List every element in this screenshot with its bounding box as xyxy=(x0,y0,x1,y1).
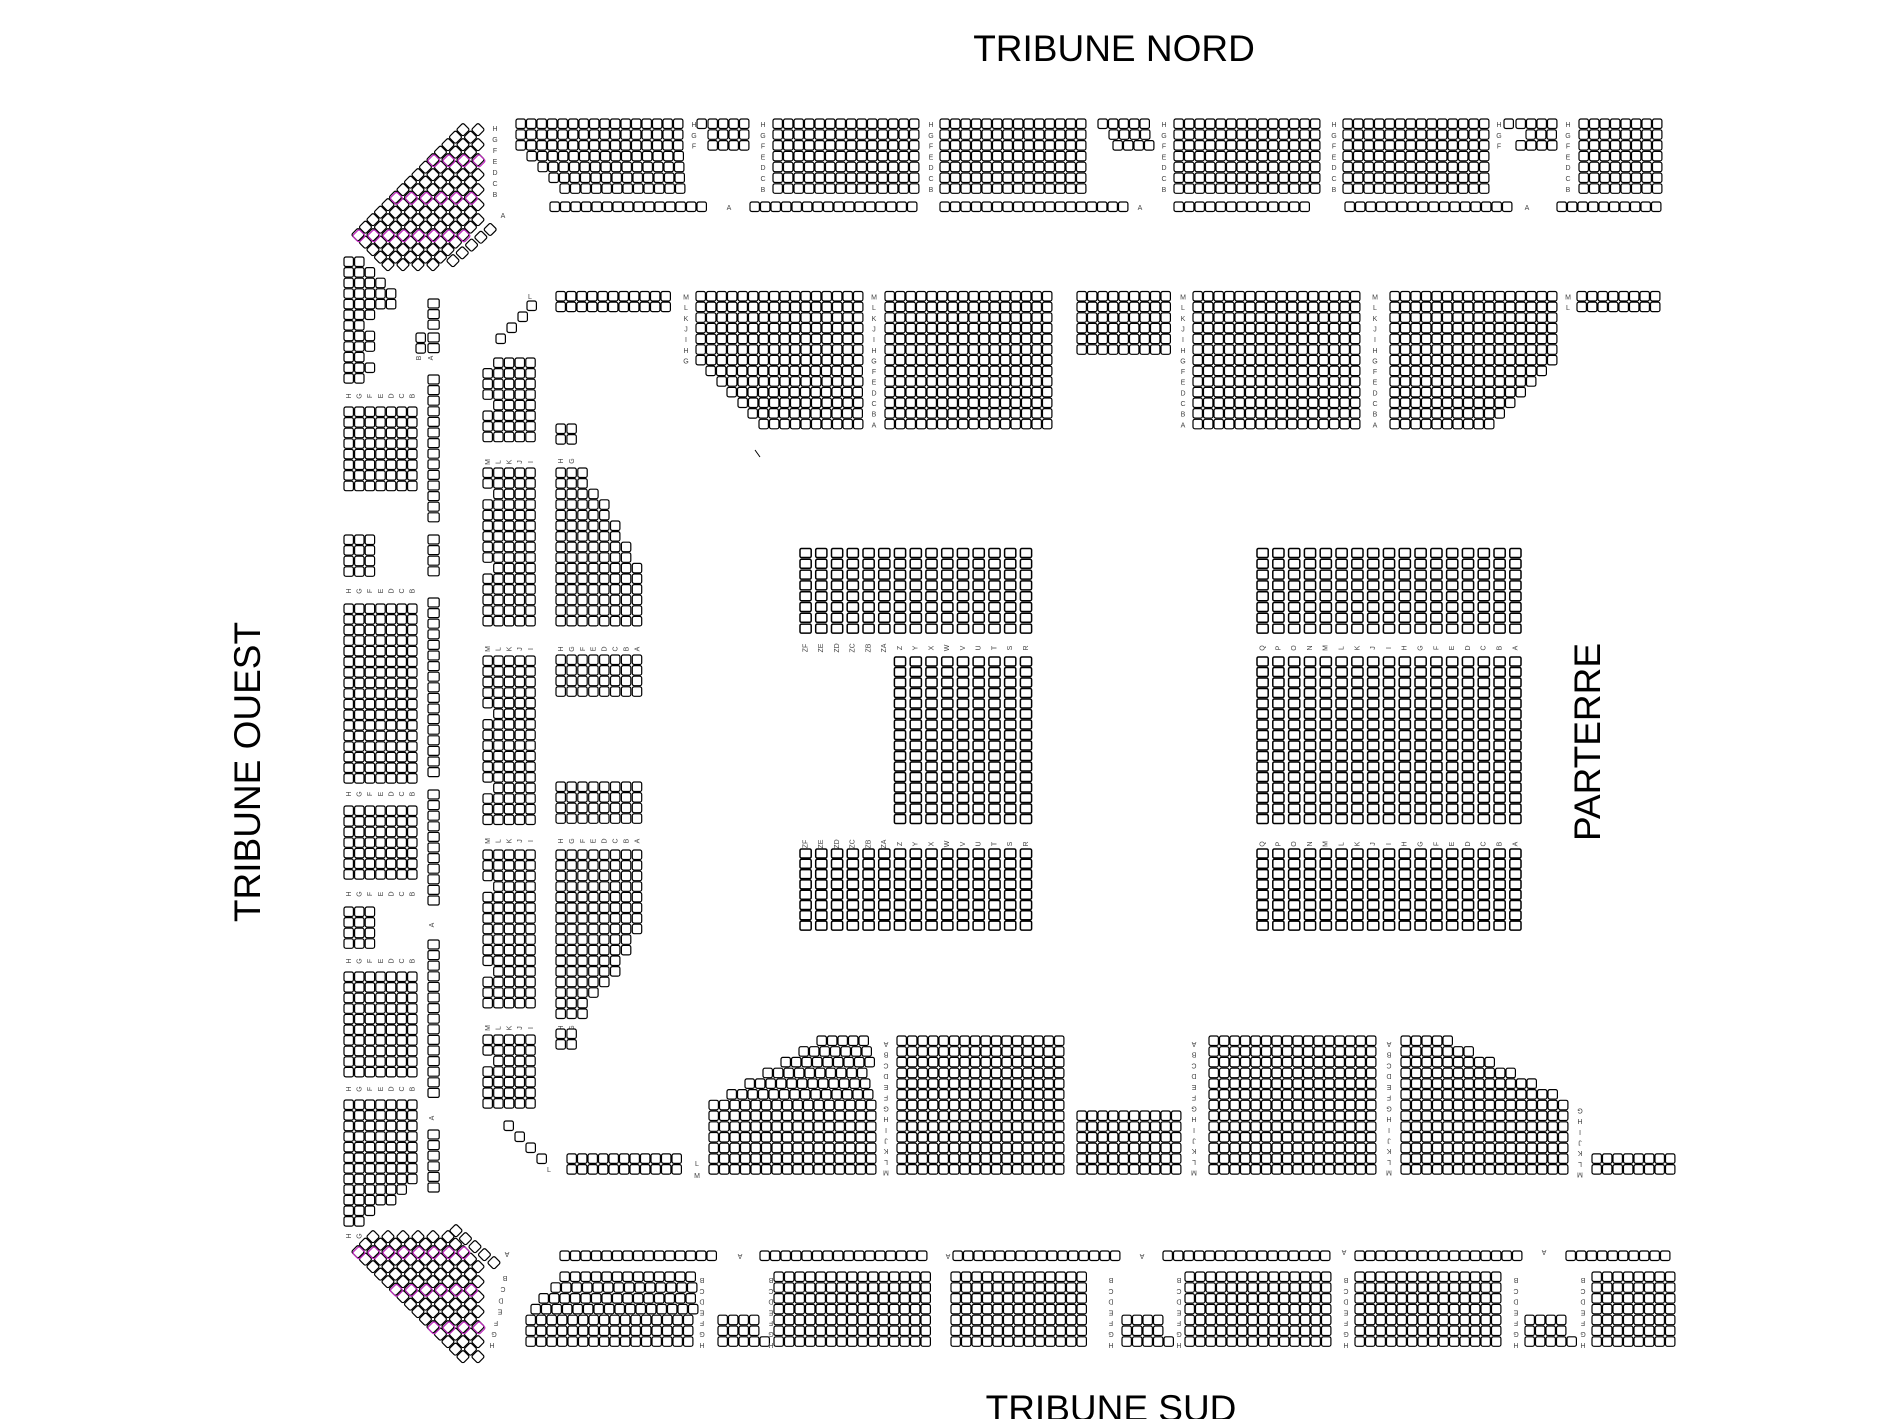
svg-text:M: M xyxy=(694,1173,700,1180)
svg-text:H: H xyxy=(883,1115,888,1122)
svg-text:ZB: ZB xyxy=(866,643,873,652)
svg-text:ZF: ZF xyxy=(803,644,810,653)
svg-text:H: H xyxy=(691,122,696,129)
svg-text:L: L xyxy=(1192,1158,1196,1165)
svg-text:H: H xyxy=(1343,1341,1348,1348)
svg-text:F: F xyxy=(494,1319,498,1326)
svg-text:K: K xyxy=(1386,1147,1391,1154)
svg-text:B: B xyxy=(410,791,417,796)
svg-text:ZB: ZB xyxy=(866,839,873,848)
svg-text:A: A xyxy=(1191,1040,1196,1047)
svg-text:J: J xyxy=(1578,1139,1582,1146)
svg-text:J: J xyxy=(884,1137,888,1144)
svg-text:K: K xyxy=(506,1025,513,1030)
svg-text:M: M xyxy=(1386,1169,1392,1176)
svg-text:K: K xyxy=(506,646,513,651)
svg-text:M: M xyxy=(1323,841,1330,847)
svg-text:D: D xyxy=(1331,165,1336,172)
svg-text:L: L xyxy=(684,305,688,312)
svg-text:M: M xyxy=(871,295,877,302)
svg-text:C: C xyxy=(1386,1061,1391,1068)
svg-text:C: C xyxy=(1331,176,1336,183)
svg-text:N: N xyxy=(1307,841,1314,846)
svg-text:A: A xyxy=(429,922,436,927)
svg-text:C: C xyxy=(768,1287,773,1294)
svg-text:F: F xyxy=(692,144,696,151)
svg-text:B: B xyxy=(1497,841,1504,846)
svg-text:M: M xyxy=(1191,1169,1197,1176)
svg-text:C: C xyxy=(883,1061,888,1068)
svg-text:H: H xyxy=(1331,122,1336,129)
svg-text:J: J xyxy=(1373,326,1377,333)
svg-text:D: D xyxy=(1565,165,1570,172)
svg-text:D: D xyxy=(388,393,395,398)
svg-text:K: K xyxy=(872,316,877,323)
svg-text:A: A xyxy=(883,1040,888,1047)
svg-text:C: C xyxy=(699,1287,704,1294)
svg-text:C: C xyxy=(928,176,933,183)
svg-text:U: U xyxy=(976,645,983,650)
svg-text:F: F xyxy=(1433,842,1440,846)
svg-text:L: L xyxy=(1387,1158,1391,1165)
svg-text:L: L xyxy=(695,1161,699,1168)
svg-text:G: G xyxy=(1180,358,1185,365)
svg-text:W: W xyxy=(944,840,951,847)
svg-text:A: A xyxy=(1512,841,1519,846)
svg-text:R: R xyxy=(1023,645,1030,650)
svg-text:ZA: ZA xyxy=(881,839,888,848)
svg-text:M: M xyxy=(1577,1171,1583,1178)
svg-text:B: B xyxy=(410,1086,417,1091)
svg-text:J: J xyxy=(1370,646,1377,650)
svg-text:G: G xyxy=(1331,133,1336,140)
svg-text:B: B xyxy=(1386,1051,1391,1058)
svg-text:G: G xyxy=(1386,1104,1391,1111)
svg-text:F: F xyxy=(367,892,374,896)
svg-text:E: E xyxy=(1373,380,1378,387)
svg-text:L: L xyxy=(496,839,503,843)
svg-text:E: E xyxy=(872,380,877,387)
svg-text:G: G xyxy=(1418,645,1425,650)
svg-text:F: F xyxy=(1162,144,1166,151)
svg-text:J: J xyxy=(1181,326,1185,333)
svg-text:K: K xyxy=(1354,841,1361,846)
svg-text:F: F xyxy=(367,792,374,796)
svg-text:W: W xyxy=(944,644,951,651)
svg-text:G: G xyxy=(1343,1330,1348,1337)
svg-text:O: O xyxy=(1291,645,1298,651)
svg-text:I: I xyxy=(873,337,875,344)
svg-text:H: H xyxy=(346,1233,353,1238)
svg-text:J: J xyxy=(517,647,524,651)
svg-text:D: D xyxy=(602,646,609,651)
svg-text:A: A xyxy=(872,422,877,429)
svg-text:E: E xyxy=(1566,154,1571,161)
svg-text:O: O xyxy=(1291,841,1298,847)
svg-text:D: D xyxy=(699,1298,704,1305)
svg-text:G: G xyxy=(1496,133,1501,140)
svg-text:B: B xyxy=(410,891,417,896)
svg-text:K: K xyxy=(1191,1147,1196,1154)
svg-text:E: E xyxy=(1181,380,1186,387)
svg-text:L: L xyxy=(1181,305,1185,312)
svg-text:L: L xyxy=(528,294,532,301)
svg-text:E: E xyxy=(378,1086,385,1091)
svg-text:F: F xyxy=(580,647,587,651)
svg-text:B: B xyxy=(1343,1276,1348,1283)
svg-text:G: G xyxy=(491,1330,496,1337)
svg-text:V: V xyxy=(960,645,967,650)
svg-text:E: E xyxy=(1513,1308,1518,1315)
svg-text:C: C xyxy=(492,181,497,188)
svg-text:E: E xyxy=(1386,1083,1391,1090)
svg-text:D: D xyxy=(1108,1298,1113,1305)
svg-text:Z: Z xyxy=(897,841,904,846)
svg-text:C: C xyxy=(871,401,876,408)
svg-text:ZE: ZE xyxy=(818,643,825,652)
svg-text:C: C xyxy=(399,393,406,398)
svg-text:G: G xyxy=(871,358,876,365)
svg-text:A: A xyxy=(428,355,435,360)
svg-text:E: E xyxy=(378,891,385,896)
svg-text:E: E xyxy=(497,1308,502,1315)
svg-text:B: B xyxy=(761,187,766,194)
svg-text:G: G xyxy=(569,646,576,651)
svg-text:Q: Q xyxy=(1260,645,1267,651)
svg-text:H: H xyxy=(1580,1341,1585,1348)
svg-text:E: E xyxy=(1449,841,1456,846)
svg-text:E: E xyxy=(378,791,385,796)
svg-text:G: G xyxy=(928,133,933,140)
svg-text:G: G xyxy=(1372,358,1377,365)
svg-text:M: M xyxy=(1372,295,1378,302)
svg-text:J: J xyxy=(517,839,524,843)
svg-text:M: M xyxy=(883,1169,889,1176)
svg-text:I: I xyxy=(528,1027,535,1029)
svg-text:T: T xyxy=(991,841,998,846)
svg-text:D: D xyxy=(1343,1298,1348,1305)
svg-text:C: C xyxy=(1176,1287,1181,1294)
svg-text:F: F xyxy=(1192,1094,1196,1101)
svg-text:B: B xyxy=(410,393,417,398)
svg-text:C: C xyxy=(1343,1287,1348,1294)
svg-text:E: E xyxy=(699,1308,704,1315)
svg-text:B: B xyxy=(883,1051,888,1058)
svg-text:C: C xyxy=(399,588,406,593)
svg-text:H: H xyxy=(346,393,353,398)
svg-text:H: H xyxy=(489,1341,494,1348)
svg-text:H: H xyxy=(346,1086,353,1091)
svg-text:D: D xyxy=(883,1072,888,1079)
svg-text:J: J xyxy=(1192,1137,1196,1144)
svg-text:F: F xyxy=(872,369,876,376)
svg-text:TRIBUNE NORD: TRIBUNE NORD xyxy=(973,28,1255,69)
svg-text:F: F xyxy=(1177,1319,1181,1326)
svg-text:H: H xyxy=(1191,1115,1196,1122)
svg-text:B: B xyxy=(410,588,417,593)
svg-text:C: C xyxy=(1513,1287,1518,1294)
svg-text:K: K xyxy=(506,838,513,843)
svg-text:B: B xyxy=(929,187,934,194)
svg-text:G: G xyxy=(357,393,364,398)
svg-text:A: A xyxy=(727,205,732,212)
svg-text:G: G xyxy=(1108,1330,1113,1337)
svg-text:H: H xyxy=(558,646,565,651)
svg-text:ZD: ZD xyxy=(834,839,841,848)
svg-text:G: G xyxy=(760,133,765,140)
svg-text:A: A xyxy=(737,1252,742,1259)
svg-text:G: G xyxy=(357,588,364,593)
svg-text:D: D xyxy=(388,588,395,593)
svg-text:K: K xyxy=(506,459,513,464)
svg-text:F: F xyxy=(367,394,374,398)
svg-text:B: B xyxy=(1181,412,1186,419)
svg-text:H: H xyxy=(768,1341,773,1348)
svg-text:D: D xyxy=(768,1298,773,1305)
svg-text:G: G xyxy=(1577,1106,1582,1113)
svg-text:X: X xyxy=(928,645,935,650)
svg-text:D: D xyxy=(1465,841,1472,846)
svg-text:J: J xyxy=(872,326,876,333)
svg-text:TRIBUNE OUEST: TRIBUNE OUEST xyxy=(227,622,268,922)
svg-text:H: H xyxy=(346,791,353,796)
svg-text:A: A xyxy=(1386,1040,1391,1047)
svg-text:A: A xyxy=(945,1252,950,1259)
svg-text:I: I xyxy=(1386,647,1393,649)
svg-text:C: C xyxy=(1481,841,1488,846)
svg-text:F: F xyxy=(769,1319,773,1326)
svg-text:G: G xyxy=(883,1104,888,1111)
svg-text:E: E xyxy=(883,1083,888,1090)
svg-text:M: M xyxy=(485,646,492,652)
svg-text:E: E xyxy=(591,646,598,651)
svg-text:F: F xyxy=(1497,144,1501,151)
svg-text:M: M xyxy=(1180,295,1186,302)
svg-text:S: S xyxy=(1007,645,1014,650)
svg-text:F: F xyxy=(1433,646,1440,650)
svg-text:H: H xyxy=(492,126,497,133)
svg-text:H: H xyxy=(699,1341,704,1348)
svg-text:C: C xyxy=(500,1285,505,1292)
svg-text:D: D xyxy=(492,170,497,177)
svg-text:H: H xyxy=(1176,1341,1181,1348)
svg-text:G: G xyxy=(569,458,576,463)
svg-text:B: B xyxy=(1162,187,1167,194)
svg-text:H: H xyxy=(683,348,688,355)
svg-text:B: B xyxy=(1176,1276,1181,1283)
svg-text:L: L xyxy=(872,305,876,312)
svg-text:Y: Y xyxy=(913,645,920,650)
svg-text:A: A xyxy=(501,213,506,220)
svg-text:G: G xyxy=(1565,133,1570,140)
svg-text:C: C xyxy=(760,176,765,183)
svg-text:F: F xyxy=(1581,1319,1585,1326)
svg-text:A: A xyxy=(1373,422,1378,429)
svg-text:D: D xyxy=(388,958,395,963)
svg-text:C: C xyxy=(1565,176,1570,183)
svg-text:L: L xyxy=(1373,305,1377,312)
svg-text:D: D xyxy=(1191,1072,1196,1079)
svg-text:N: N xyxy=(1307,645,1314,650)
svg-text:F: F xyxy=(700,1319,704,1326)
svg-text:D: D xyxy=(388,791,395,796)
svg-text:C: C xyxy=(399,1086,406,1091)
svg-text:I: I xyxy=(1579,1128,1581,1135)
svg-text:M: M xyxy=(485,838,492,844)
svg-text:D: D xyxy=(1386,1072,1391,1079)
svg-text:H: H xyxy=(558,458,565,463)
svg-text:G: G xyxy=(1513,1330,1518,1337)
svg-text:C: C xyxy=(1372,401,1377,408)
svg-text:D: D xyxy=(760,165,765,172)
svg-text:K: K xyxy=(1577,1149,1582,1156)
svg-text:A: A xyxy=(1512,645,1519,650)
svg-text:H: H xyxy=(1496,122,1501,129)
svg-text:G: G xyxy=(492,137,497,144)
svg-text:L: L xyxy=(496,460,503,464)
svg-text:A: A xyxy=(1138,205,1143,212)
svg-text:M: M xyxy=(485,1025,492,1031)
svg-text:H: H xyxy=(1161,122,1166,129)
svg-text:C: C xyxy=(613,838,620,843)
svg-text:B: B xyxy=(623,838,630,843)
svg-text:A: A xyxy=(634,646,641,651)
svg-text:E: E xyxy=(1162,154,1167,161)
svg-text:B: B xyxy=(1332,187,1337,194)
svg-text:F: F xyxy=(1181,369,1185,376)
svg-text:L: L xyxy=(1566,305,1570,312)
svg-text:U: U xyxy=(976,841,983,846)
svg-text:G: G xyxy=(1176,1330,1181,1337)
svg-text:B: B xyxy=(699,1276,704,1283)
svg-text:D: D xyxy=(602,838,609,843)
svg-text:E: E xyxy=(929,154,934,161)
svg-text:I: I xyxy=(1386,843,1393,845)
svg-text:A: A xyxy=(1525,205,1530,212)
svg-text:E: E xyxy=(1108,1308,1113,1315)
svg-text:B: B xyxy=(1191,1051,1196,1058)
svg-text:M: M xyxy=(683,295,689,302)
svg-text:C: C xyxy=(399,791,406,796)
svg-text:F: F xyxy=(580,839,587,843)
svg-text:F: F xyxy=(367,959,374,963)
svg-text:H: H xyxy=(1402,645,1409,650)
svg-text:B: B xyxy=(410,958,417,963)
svg-text:H: H xyxy=(1565,122,1570,129)
svg-text:B: B xyxy=(1497,645,1504,650)
svg-text:R: R xyxy=(1023,841,1030,846)
svg-text:M: M xyxy=(1323,645,1330,651)
svg-text:X: X xyxy=(928,841,935,846)
svg-text:A: A xyxy=(1139,1252,1144,1259)
svg-text:G: G xyxy=(357,1086,364,1091)
svg-text:H: H xyxy=(346,958,353,963)
svg-text:E: E xyxy=(378,958,385,963)
svg-text:E: E xyxy=(1343,1308,1348,1315)
svg-text:H: H xyxy=(346,891,353,896)
svg-text:E: E xyxy=(761,154,766,161)
svg-text:F: F xyxy=(493,148,497,155)
svg-text:D: D xyxy=(1176,1298,1181,1305)
svg-text:C: C xyxy=(1161,176,1166,183)
svg-text:J: J xyxy=(517,460,524,464)
svg-text:B: B xyxy=(493,192,498,199)
svg-text:D: D xyxy=(498,1296,503,1303)
svg-text:L: L xyxy=(547,1167,551,1174)
svg-text:I: I xyxy=(1193,1126,1195,1133)
svg-text:B: B xyxy=(1580,1276,1585,1283)
svg-text:E: E xyxy=(378,588,385,593)
svg-text:F: F xyxy=(367,1087,374,1091)
svg-text:B: B xyxy=(1108,1276,1113,1283)
svg-text:E: E xyxy=(493,159,498,166)
svg-text:S: S xyxy=(1007,841,1014,846)
svg-text:F: F xyxy=(1332,144,1336,151)
svg-text:B: B xyxy=(1513,1276,1518,1283)
svg-text:E: E xyxy=(591,838,598,843)
svg-text:B: B xyxy=(502,1274,507,1281)
svg-text:K: K xyxy=(1354,645,1361,650)
svg-text:L: L xyxy=(1339,646,1346,650)
svg-text:I: I xyxy=(528,648,535,650)
svg-text:ZC: ZC xyxy=(850,839,857,848)
svg-text:D: D xyxy=(388,891,395,896)
svg-text:H: H xyxy=(871,348,876,355)
svg-text:I: I xyxy=(528,461,535,463)
svg-text:I: I xyxy=(528,840,535,842)
svg-text:E: E xyxy=(768,1308,773,1315)
svg-text:F: F xyxy=(1566,144,1570,151)
svg-text:E: E xyxy=(378,393,385,398)
svg-text:G: G xyxy=(569,838,576,843)
svg-text:A: A xyxy=(1541,1248,1546,1255)
svg-text:G: G xyxy=(1161,133,1166,140)
svg-text:I: I xyxy=(1374,337,1376,344)
svg-text:I: I xyxy=(685,337,687,344)
svg-text:K: K xyxy=(1181,316,1186,323)
svg-text:ZF: ZF xyxy=(803,840,810,849)
svg-text:C: C xyxy=(1191,1061,1196,1068)
svg-text:G: G xyxy=(357,1233,364,1238)
svg-text:B: B xyxy=(768,1276,773,1283)
svg-text:G: G xyxy=(768,1330,773,1337)
svg-text:ZD: ZD xyxy=(834,643,841,652)
svg-text:H: H xyxy=(346,588,353,593)
svg-text:E: E xyxy=(1191,1083,1196,1090)
svg-text:L: L xyxy=(496,647,503,651)
svg-text:C: C xyxy=(1481,645,1488,650)
svg-text:F: F xyxy=(1373,369,1377,376)
svg-text:H: H xyxy=(1386,1115,1391,1122)
svg-text:G: G xyxy=(357,891,364,896)
svg-text:T: T xyxy=(991,645,998,650)
svg-text:Y: Y xyxy=(913,841,920,846)
svg-text:B: B xyxy=(416,355,423,360)
svg-text:G: G xyxy=(1580,1330,1585,1337)
svg-text:A: A xyxy=(1181,422,1186,429)
svg-text:J: J xyxy=(1370,842,1377,846)
svg-text:H: H xyxy=(1577,1117,1582,1124)
svg-text:G: G xyxy=(1418,841,1425,846)
svg-text:C: C xyxy=(1180,401,1185,408)
svg-text:G: G xyxy=(699,1330,704,1337)
svg-text:D: D xyxy=(1513,1298,1518,1305)
svg-text:F: F xyxy=(884,1094,888,1101)
svg-text:F: F xyxy=(1109,1319,1113,1326)
svg-text:E: E xyxy=(1580,1308,1585,1315)
svg-text:Q: Q xyxy=(1260,841,1267,847)
svg-text:D: D xyxy=(1465,645,1472,650)
